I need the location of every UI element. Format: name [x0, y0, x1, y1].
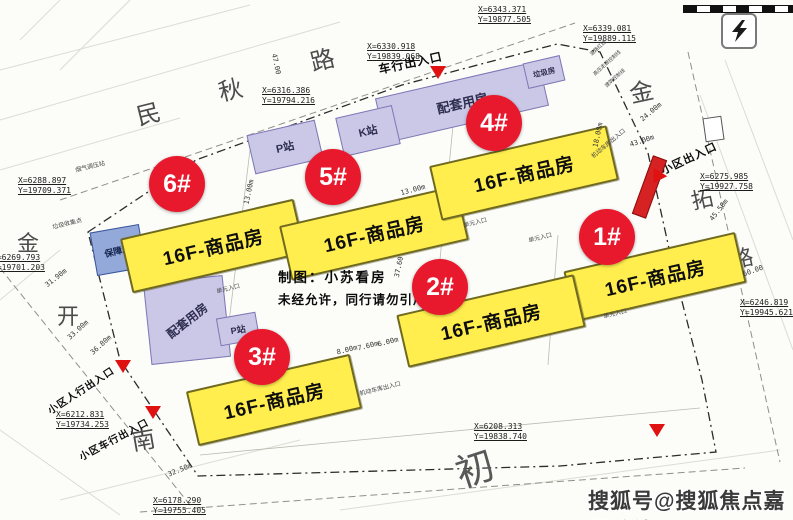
entrance-arrow-icon	[649, 424, 665, 437]
credit-line-1: 制图：小苏看房	[278, 266, 427, 286]
lightning-symbol-box	[721, 13, 757, 49]
building-5-label: 16F-商品房	[321, 208, 428, 257]
credit-note: 制图：小苏看房 未经允许，同行请勿引用	[278, 266, 427, 308]
coordinate-label: X=6212.831Y=19734.253	[56, 410, 109, 431]
building-support-bottom-label: 配套用房	[163, 299, 211, 342]
building-garbage-room-label: 垃圾房	[532, 64, 556, 80]
building-6-badge: 6#	[149, 156, 205, 212]
scale-bar	[683, 5, 793, 13]
coordinate-label: X=6269.793Y=19701.203	[0, 253, 45, 274]
building-k-station-label: K站	[357, 121, 379, 141]
site-plan-canvas: 民 秋 路 金 拓 路 金 开 南 初 配套用房 K站 P站 垃圾房 配套用房 …	[0, 0, 793, 520]
building-5-badge: 5#	[305, 149, 361, 205]
building-1-badge: 1#	[579, 209, 635, 265]
coordinate-label: X=6288.897Y=19709.371	[18, 176, 71, 197]
coordinate-label: X=6178.290Y=19755.405	[153, 496, 206, 517]
building-4-label: 16F-商品房	[471, 148, 578, 197]
credit-line-2: 未经允许，同行请勿引用	[278, 289, 427, 308]
building-p-station-top-label: P站	[274, 137, 295, 157]
coordinate-label: X=6339.081Y=19889.115	[583, 24, 636, 45]
building-3-label: 16F-商品房	[221, 375, 328, 424]
entrance-arrow-icon	[430, 66, 446, 79]
building-4-badge: 4#	[466, 95, 522, 151]
coordinate-label: X=6208.313Y=19838.740	[474, 422, 527, 443]
building-2-badge: 2#	[412, 259, 468, 315]
watermark: 搜狐号@搜狐焦点嘉峪关站	[588, 485, 793, 520]
entrance-arrow-icon	[145, 406, 161, 419]
building-6-label: 16F-商品房	[160, 221, 267, 270]
coordinate-label: X=6246.819Y=19945.621	[740, 298, 793, 319]
entrance-arrow-icon	[115, 360, 131, 373]
coordinate-label: X=6343.371Y=19877.505	[478, 5, 531, 26]
small-structure	[702, 116, 724, 142]
coordinate-label: X=6316.386Y=19794.216	[262, 86, 315, 107]
lightning-icon	[728, 19, 750, 43]
coordinate-label: X=6275.985Y=19927.758	[700, 172, 753, 193]
building-3-badge: 3#	[234, 329, 290, 385]
